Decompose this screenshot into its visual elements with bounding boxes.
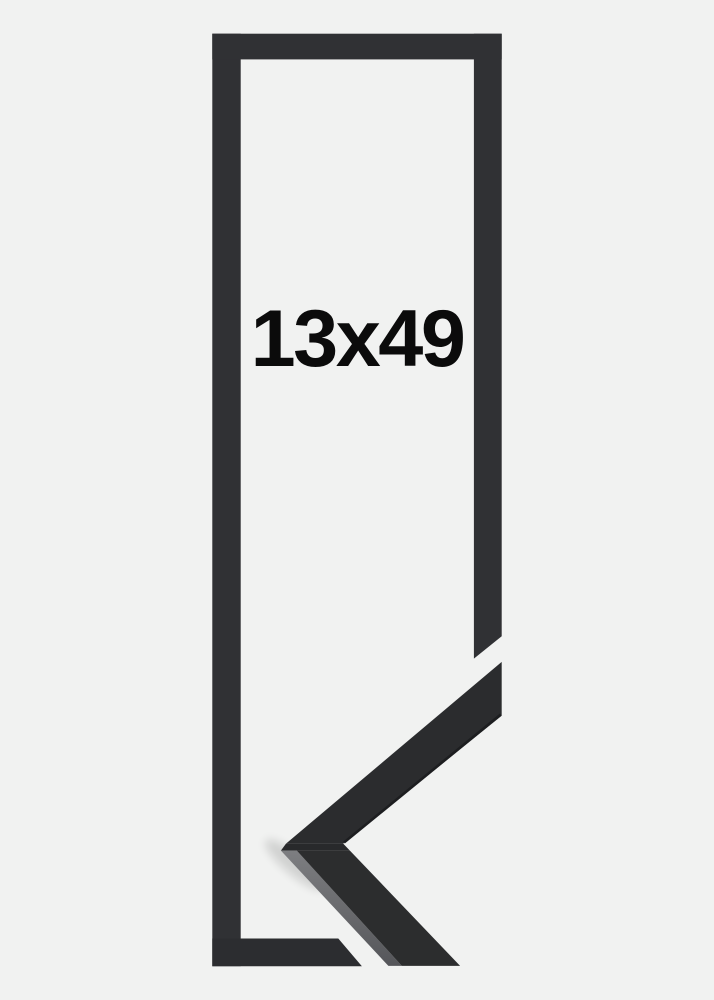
size-label: 13x49	[212, 299, 502, 380]
frame-top-bar	[212, 34, 501, 60]
corner-sample-miter-face	[281, 844, 350, 851]
frame-bottom-bar	[212, 939, 362, 967]
product-image-canvas: 13x49	[0, 0, 714, 1000]
frame-left-bar	[212, 34, 240, 967]
corner-sample-upper-arm	[286, 662, 502, 844]
frame-graphic	[0, 0, 714, 1000]
